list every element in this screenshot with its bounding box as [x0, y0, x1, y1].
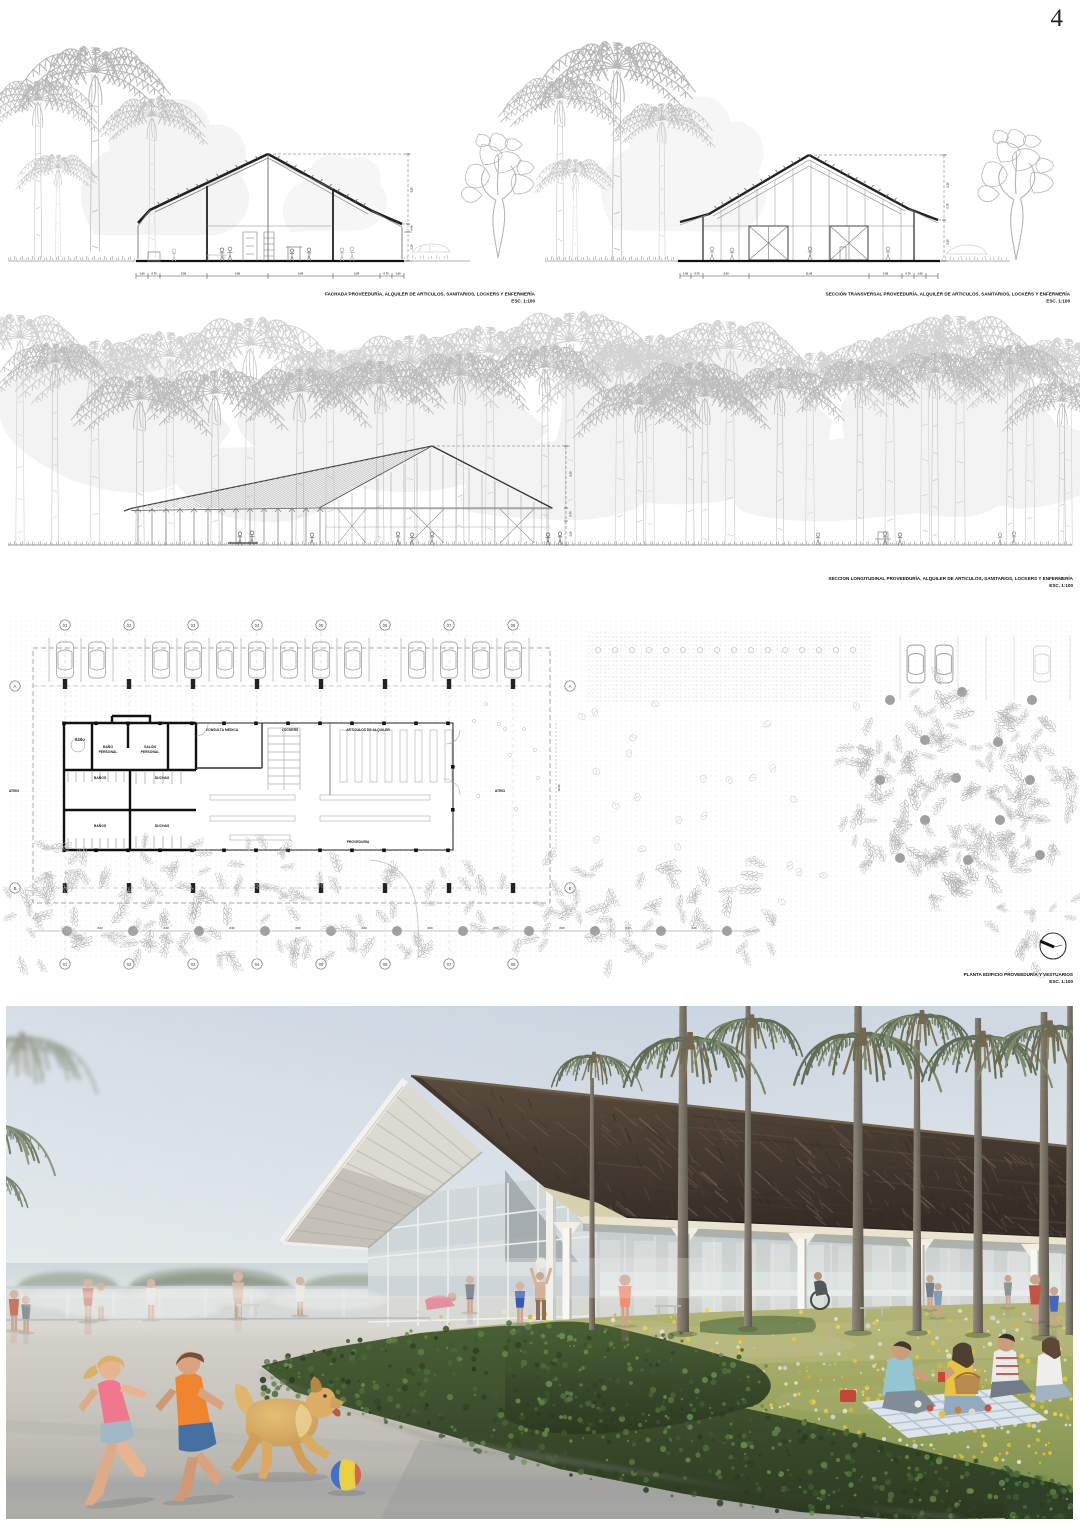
svg-text:2.50: 2.50	[354, 272, 360, 276]
svg-text:ATRIO: ATRIO	[495, 789, 506, 793]
svg-text:LOCKERS: LOCKERS	[282, 728, 299, 732]
svg-text:2.50: 2.50	[883, 272, 889, 276]
svg-text:0.70: 0.70	[694, 272, 700, 276]
svg-text:02: 02	[127, 962, 132, 967]
svg-text:2.20: 2.20	[569, 531, 573, 537]
svg-text:PLANTA EDIFICIO PROVEEDURÍA Y: PLANTA EDIFICIO PROVEEDURÍA Y VESTUARIOS	[964, 970, 1073, 977]
svg-text:8.00: 8.00	[691, 926, 697, 930]
svg-text:5.10: 5.10	[946, 182, 950, 188]
svg-text:1.00: 1.00	[683, 272, 689, 276]
svg-text:06: 06	[383, 623, 388, 628]
svg-text:SALÓN: SALÓN	[144, 744, 156, 749]
svg-text:03: 03	[191, 962, 196, 967]
svg-text:ARTICULOS DE ALQUILER: ARTICULOS DE ALQUILER	[346, 728, 390, 732]
svg-text:5.00: 5.00	[235, 272, 241, 276]
svg-text:PERSONAL: PERSONAL	[141, 750, 160, 754]
svg-text:08: 08	[511, 623, 516, 628]
svg-text:2.20: 2.20	[410, 244, 414, 250]
svg-text:ESC. 1:100: ESC. 1:100	[1049, 979, 1073, 984]
svg-text:2.50: 2.50	[181, 272, 187, 276]
svg-text:01: 01	[63, 962, 68, 967]
svg-text:1.00: 1.00	[139, 272, 145, 276]
svg-text:8.00: 8.00	[427, 926, 433, 930]
svg-text:PROVEDURIA: PROVEDURIA	[347, 840, 370, 844]
svg-text:ESC. 1:100: ESC. 1:100	[511, 299, 535, 304]
svg-text:SECCION LONGITUDINAL PROVEEDUR: SECCION LONGITUDINAL PROVEEDURÍA, ALQUIL…	[828, 574, 1073, 581]
svg-text:PERSONAL: PERSONAL	[99, 750, 118, 754]
svg-text:A: A	[569, 684, 572, 689]
svg-text:BAÑOS: BAÑOS	[94, 775, 107, 780]
svg-text:DUCHAS: DUCHAS	[155, 824, 170, 828]
svg-text:8.00: 8.00	[229, 926, 235, 930]
svg-text:0.70: 0.70	[905, 272, 911, 276]
svg-text:BAÑOS: BAÑOS	[94, 823, 107, 828]
svg-text:2.20: 2.20	[946, 239, 950, 245]
svg-text:8.00: 8.00	[559, 926, 565, 930]
svg-text:FACHADA PROVEEDURÍA, ALQUILER: FACHADA PROVEEDURÍA, ALQUILER DE ARTICUL…	[325, 290, 536, 297]
svg-text:11.00: 11.00	[806, 272, 813, 276]
svg-text:07: 07	[447, 623, 452, 628]
svg-text:04: 04	[255, 623, 260, 628]
svg-text:0.40: 0.40	[410, 225, 414, 231]
svg-text:05: 05	[319, 623, 324, 628]
svg-text:4: 4	[1051, 5, 1064, 32]
svg-text:BAÑO: BAÑO	[75, 737, 85, 742]
svg-text:07: 07	[447, 962, 452, 967]
svg-text:8.00: 8.00	[97, 926, 103, 930]
svg-text:A: A	[14, 684, 17, 689]
svg-text:0.70: 0.70	[569, 511, 573, 517]
svg-text:ATRIO: ATRIO	[9, 789, 20, 793]
svg-text:08: 08	[511, 962, 516, 967]
svg-text:04: 04	[255, 962, 260, 967]
svg-text:DUCHAS: DUCHAS	[155, 776, 170, 780]
svg-text:2.50: 2.50	[723, 272, 729, 276]
svg-text:16.40: 16.40	[557, 784, 561, 791]
svg-text:02: 02	[127, 623, 132, 628]
svg-text:1.00: 1.00	[395, 272, 401, 276]
svg-text:0.70: 0.70	[151, 272, 157, 276]
svg-text:3.20: 3.20	[410, 187, 414, 193]
svg-text:5.10: 5.10	[569, 471, 573, 477]
svg-text:06: 06	[383, 962, 388, 967]
svg-text:5.00: 5.00	[298, 272, 304, 276]
svg-text:ESC. 1:100: ESC. 1:100	[1046, 299, 1070, 304]
svg-text:BAÑO: BAÑO	[103, 744, 113, 749]
svg-text:1.00: 1.00	[917, 272, 923, 276]
svg-text:01: 01	[63, 623, 68, 628]
svg-text:0.70: 0.70	[946, 203, 950, 209]
svg-text:SECCIÓN TRANSVERSAL PROVEEDURÍ: SECCIÓN TRANSVERSAL PROVEEDURÍA, ALQUILE…	[826, 290, 1071, 297]
svg-text:0.70: 0.70	[383, 272, 389, 276]
svg-text:05: 05	[319, 962, 324, 967]
svg-text:B: B	[14, 886, 17, 891]
svg-text:B: B	[569, 886, 572, 891]
svg-text:CONSULTA MEDICA: CONSULTA MEDICA	[206, 728, 239, 732]
svg-text:8.00: 8.00	[295, 926, 301, 930]
svg-text:ESC. 1:100: ESC. 1:100	[1049, 583, 1073, 588]
svg-text:03: 03	[191, 623, 196, 628]
